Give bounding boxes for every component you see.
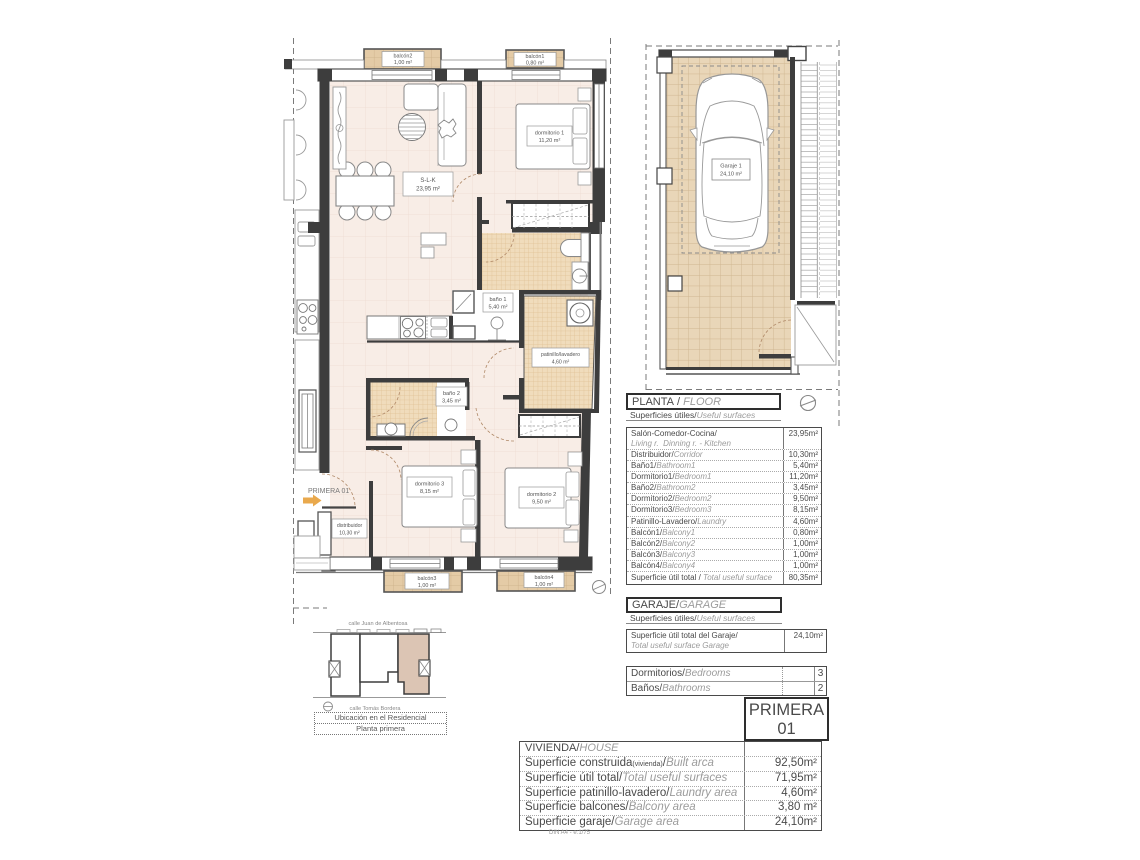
svg-text:balcón3: balcón3: [418, 576, 437, 582]
svg-text:calle Juan de Albentosa: calle Juan de Albentosa: [348, 621, 408, 627]
svg-text:S-L-K: S-L-K: [420, 178, 435, 184]
svg-text:patinillo/lavadero: patinillo/lavadero: [541, 352, 580, 358]
svg-text:10,30 m²: 10,30 m²: [339, 531, 360, 537]
svg-text:23,95 m²: 23,95 m²: [416, 187, 440, 193]
svg-text:9,50 m²: 9,50 m²: [532, 500, 551, 506]
svg-text:3,45 m²: 3,45 m²: [442, 399, 461, 405]
svg-text:baño 1: baño 1: [489, 297, 506, 303]
svg-text:dormitorio 2: dormitorio 2: [527, 492, 557, 498]
svg-text:1,00 m²: 1,00 m²: [394, 60, 412, 66]
svg-text:1,00 m²: 1,00 m²: [418, 583, 436, 589]
svg-text:dormitorio 1: dormitorio 1: [535, 131, 565, 137]
svg-text:8,15 m²: 8,15 m²: [420, 489, 439, 495]
svg-text:dormitorio 3: dormitorio 3: [415, 482, 445, 488]
svg-text:baño 2: baño 2: [443, 391, 460, 397]
svg-text:0,80 m²: 0,80 m²: [526, 61, 544, 67]
svg-text:24,10 m²: 24,10 m²: [720, 172, 742, 178]
svg-text:11,20 m²: 11,20 m²: [539, 138, 561, 144]
svg-text:distribuidor: distribuidor: [337, 523, 363, 529]
svg-text:4,60 m²: 4,60 m²: [552, 360, 570, 366]
svg-text:balcón1: balcón1: [526, 54, 545, 60]
svg-text:Garaje 1: Garaje 1: [720, 164, 741, 170]
svg-text:balcón2: balcón2: [394, 54, 413, 60]
svg-text:balcón4: balcón4: [535, 575, 554, 581]
svg-text:5,40 m²: 5,40 m²: [489, 305, 508, 311]
svg-text:PRIMERA 01: PRIMERA 01: [308, 488, 349, 495]
svg-text:1,00 m²: 1,00 m²: [535, 582, 553, 588]
